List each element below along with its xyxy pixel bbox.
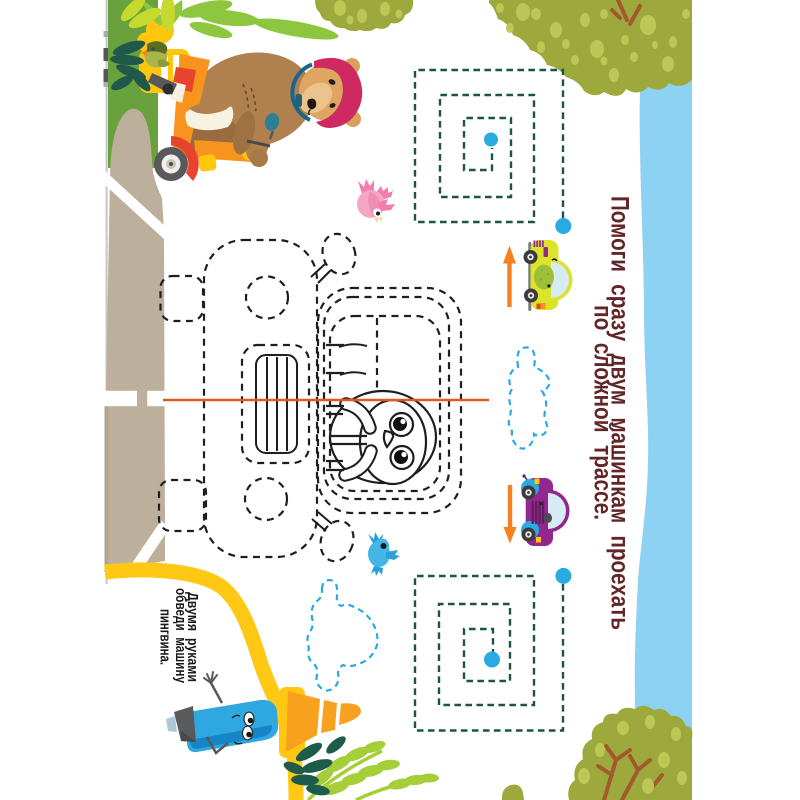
svg-text:по сложной трассе.: по сложной трассе. (589, 305, 617, 520)
svg-text:пингвина.: пингвина. (157, 609, 173, 665)
svg-text:обведи машину: обведи машину (172, 588, 188, 683)
